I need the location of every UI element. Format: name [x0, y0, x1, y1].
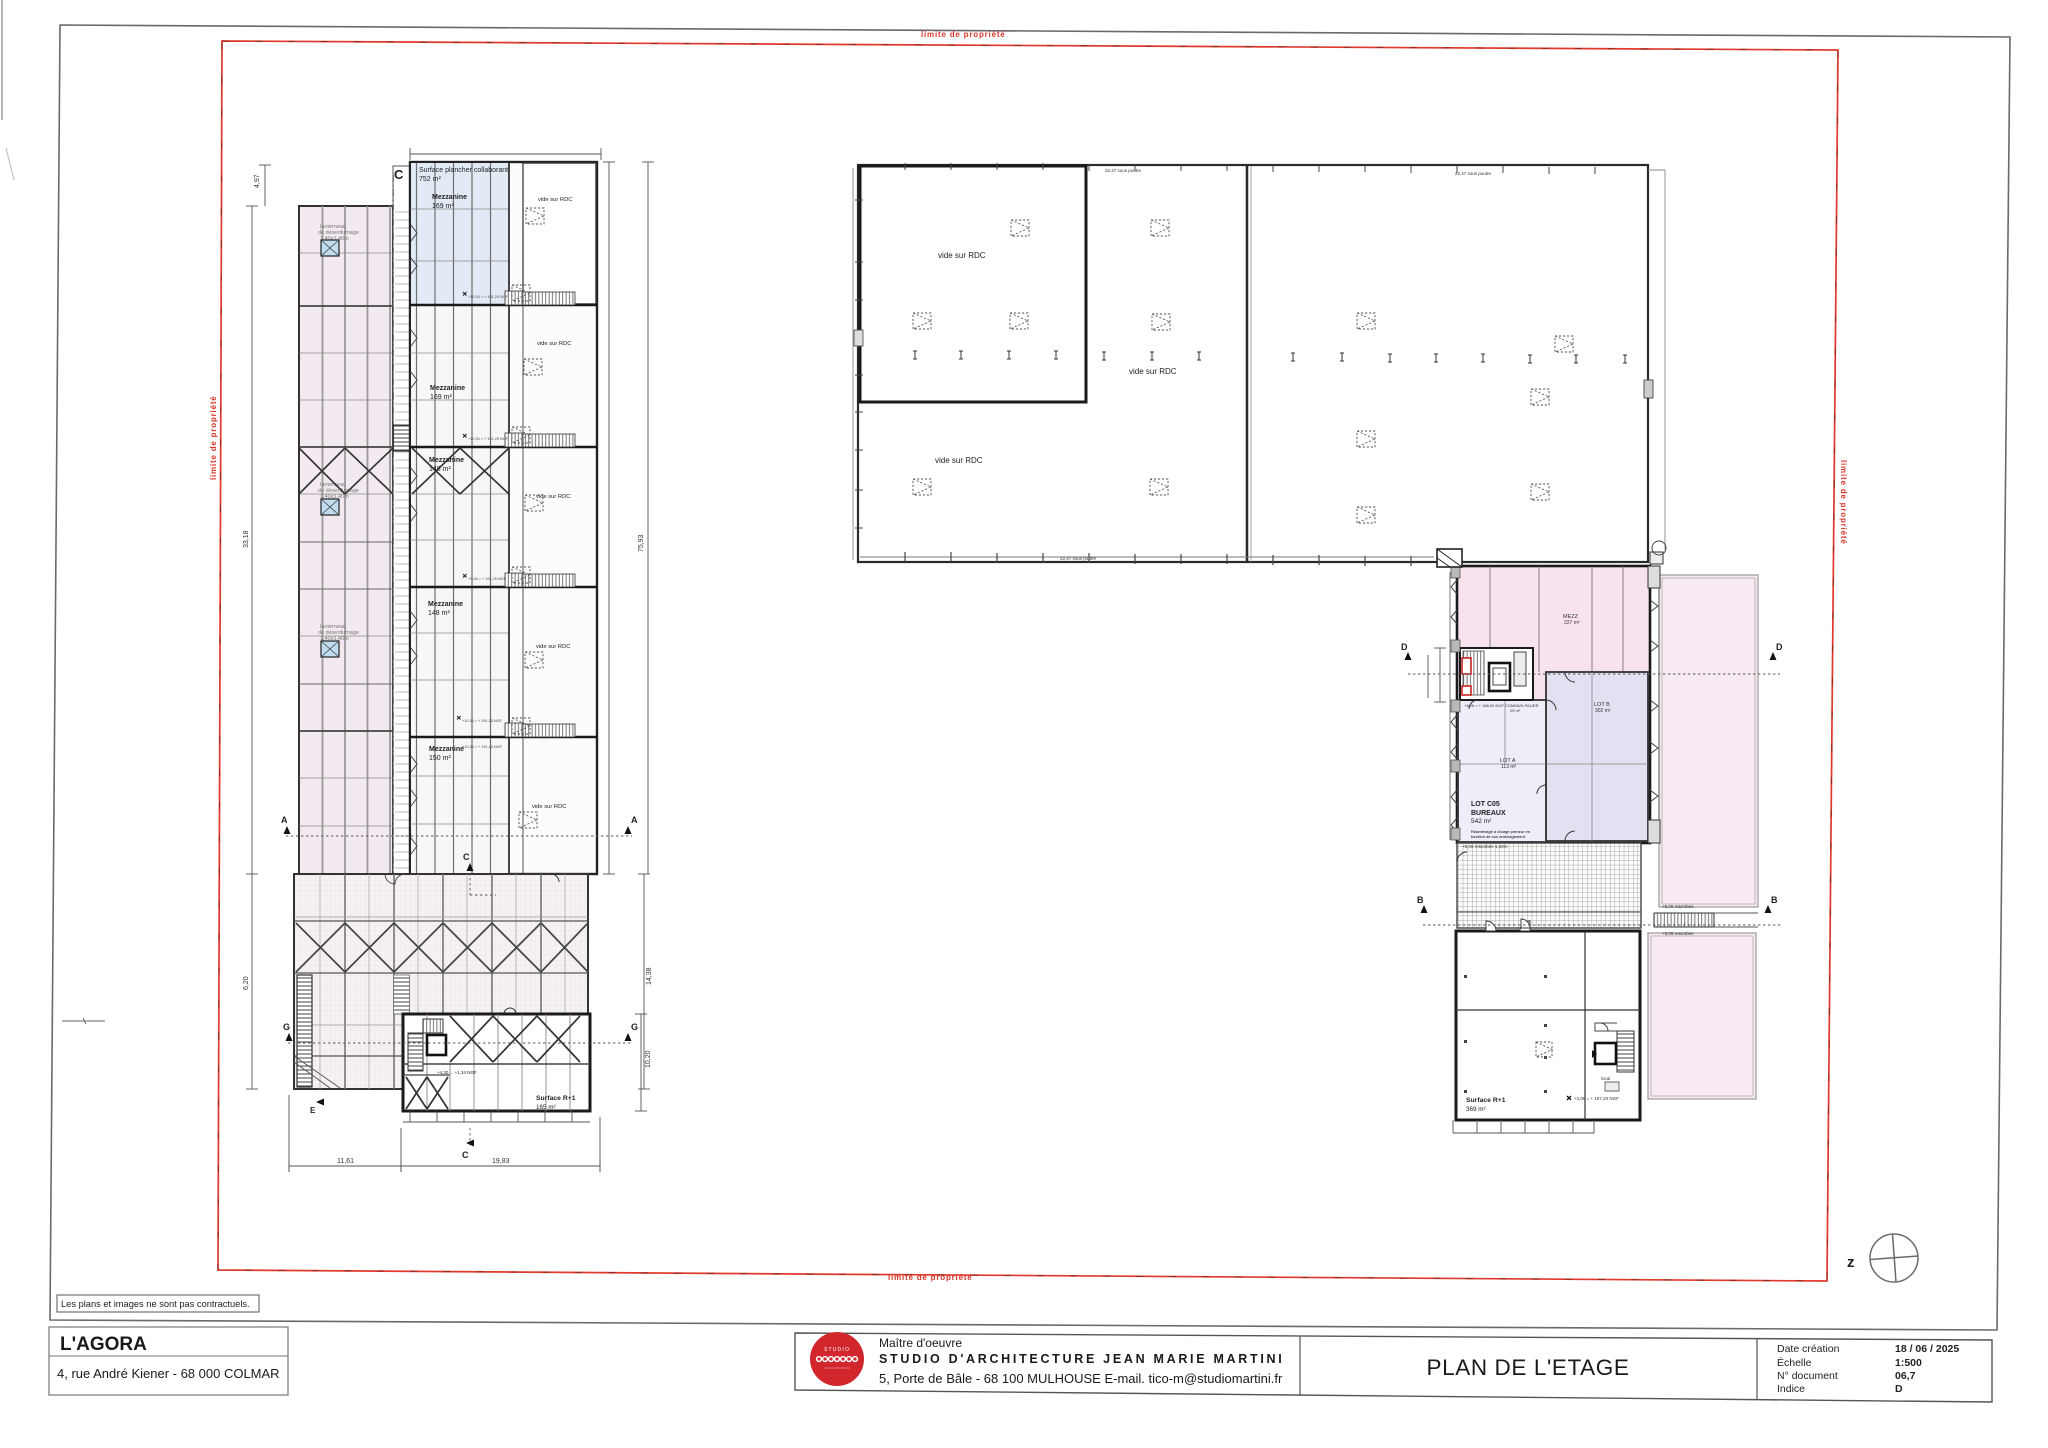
svg-text:+10,34 = + 191,25 NGF: +10,34 = + 191,25 NGF — [468, 437, 509, 441]
svg-text:4, rue André Kiener - 68 000 C: 4, rue André Kiener - 68 000 COLMAR — [57, 1366, 280, 1381]
svg-text:+5,06 retombée: +5,06 retombée — [1662, 904, 1694, 909]
svg-text:14,38: 14,38 — [646, 967, 653, 985]
svg-text:22,47 sous poutre: 22,47 sous poutre — [1060, 556, 1097, 561]
svg-text:10,20: 10,20 — [645, 1050, 652, 1068]
svg-text:+10,34 = + 191,25 NGF: +10,34 = + 191,25 NGF — [462, 745, 503, 749]
svg-text:Mezzanine: Mezzanine — [429, 746, 464, 753]
svg-text:LOT C05: LOT C05 — [1471, 801, 1500, 808]
svg-text:fonction de son aménagement: fonction de son aménagement — [1471, 834, 1526, 839]
svg-text:limite de propriété: limite de propriété — [921, 30, 1006, 39]
svg-text:vide sur RDC: vide sur RDC — [538, 197, 572, 203]
svg-text:+10,34 = + 191,25 NGF: +10,34 = + 191,25 NGF — [462, 719, 503, 723]
svg-text:752 m²: 752 m² — [419, 176, 441, 183]
svg-text:Mezzanine: Mezzanine — [429, 457, 464, 464]
svg-text:D: D — [1895, 1383, 1903, 1395]
svg-text:B: B — [1417, 895, 1424, 905]
svg-text:22,47 sous poutre: 22,47 sous poutre — [1455, 171, 1492, 176]
svg-text:169 m²: 169 m² — [432, 203, 454, 210]
svg-text:limite de propriété: limite de propriété — [209, 395, 218, 480]
svg-text:B: B — [1771, 895, 1778, 905]
svg-text:+5,06 retombée 1,20m: +5,06 retombée 1,20m — [1462, 844, 1508, 849]
svg-text:Maître d'oeuvre: Maître d'oeuvre — [879, 1336, 962, 1350]
svg-text:06,7: 06,7 — [1895, 1370, 1916, 1382]
svg-text:G: G — [283, 1022, 290, 1032]
svg-text:302 m²: 302 m² — [1595, 708, 1611, 714]
svg-text:vide sur RDC: vide sur RDC — [536, 644, 570, 650]
svg-text:25 m²: 25 m² — [1510, 708, 1521, 713]
svg-text:Surface plancher collaborant: Surface plancher collaborant — [419, 167, 508, 174]
svg-text:N° document: N° document — [1777, 1370, 1838, 1382]
svg-text:vide sur RDC: vide sur RDC — [938, 251, 986, 260]
svg-text:+5,06 retombée: +5,06 retombée — [1662, 931, 1694, 936]
svg-text:C: C — [462, 1150, 469, 1160]
svg-text:PLAN DE L'ETAGE: PLAN DE L'ETAGE — [1427, 1355, 1630, 1380]
svg-text:Mezzanine: Mezzanine — [428, 601, 463, 608]
svg-text:local: local — [1601, 1076, 1610, 1081]
svg-text:+4,06 = + 187,20 NGF: +4,06 = + 187,20 NGF — [1574, 1096, 1619, 1101]
svg-text:6,20: 6,20 — [243, 976, 250, 990]
svg-text:D: D — [1401, 642, 1408, 652]
svg-text:D: D — [1776, 642, 1783, 652]
svg-text:Mezzanine: Mezzanine — [430, 385, 465, 392]
svg-text:+4,30 ... +1,34 NGF: +4,30 ... +1,34 NGF — [437, 1070, 477, 1075]
svg-text:169 m²: 169 m² — [430, 394, 452, 401]
svg-text:113 m²: 113 m² — [1501, 764, 1517, 770]
svg-text:227 m²: 227 m² — [1564, 620, 1580, 626]
svg-text:A: A — [631, 815, 638, 825]
svg-text:148 m²: 148 m² — [429, 466, 451, 473]
svg-text:11,61: 11,61 — [337, 1158, 354, 1165]
svg-text:z: z — [1847, 1254, 1855, 1271]
svg-text:22,47 sous poutre: 22,47 sous poutre — [1105, 168, 1142, 173]
svg-text:Indice: Indice — [1777, 1383, 1805, 1395]
svg-text:165 m²: 165 m² — [536, 1104, 556, 1111]
svg-text:369 m²: 369 m² — [1466, 1106, 1486, 1113]
svg-text:18 / 06 / 2025: 18 / 06 / 2025 — [1895, 1343, 1959, 1355]
svg-text:limite de propriété: limite de propriété — [888, 1273, 973, 1282]
svg-text:33,18: 33,18 — [243, 530, 250, 548]
svg-text:A: A — [281, 815, 288, 825]
svg-text:148 m²: 148 m² — [428, 610, 450, 617]
svg-text:limite de propriété: limite de propriété — [1839, 460, 1848, 545]
svg-text:+10,34 = + 191,25 NGF: +10,34 = + 191,25 NGF — [468, 295, 509, 299]
svg-text:E: E — [310, 1106, 316, 1115]
svg-text:Surface R+1: Surface R+1 — [1466, 1097, 1506, 1104]
svg-text:L'AGORA: L'AGORA — [60, 1334, 147, 1355]
svg-text:STUDIO: STUDIO — [824, 1347, 850, 1353]
svg-text:STUDIO D'ARCHITECTURE JEAN MAR: STUDIO D'ARCHITECTURE JEAN MARIE MARTINI — [879, 1352, 1284, 1366]
svg-text:vide sur RDC: vide sur RDC — [935, 456, 983, 465]
svg-text:BUREAUX: BUREAUX — [1471, 810, 1506, 817]
svg-text:Mezzanine: Mezzanine — [432, 194, 467, 201]
svg-text:C: C — [463, 852, 470, 862]
svg-text:5, Porte de Bâle - 68 100 MULH: 5, Porte de Bâle - 68 100 MULHOUSE E-mai… — [879, 1371, 1283, 1386]
svg-text:G: G — [631, 1022, 638, 1032]
svg-text:75,93: 75,93 — [638, 534, 645, 552]
svg-text:+9,06 = + 191,25 NGF: +9,06 = + 191,25 NGF — [468, 577, 507, 581]
svg-text:vide sur RDC: vide sur RDC — [1129, 367, 1177, 376]
svg-text:Échelle: Échelle — [1777, 1356, 1812, 1369]
svg-text:vide sur RDC: vide sur RDC — [537, 341, 571, 347]
svg-text:150 m²: 150 m² — [429, 755, 451, 762]
svg-text:1:500: 1:500 — [1895, 1357, 1922, 1369]
svg-text:vide sur RDC: vide sur RDC — [532, 804, 566, 810]
svg-text:Date création: Date création — [1777, 1343, 1840, 1355]
svg-text:542 m²: 542 m² — [1471, 818, 1492, 825]
svg-text:4,97: 4,97 — [254, 174, 261, 188]
svg-text:Surface R+1: Surface R+1 — [536, 1095, 576, 1102]
svg-text:C: C — [394, 167, 404, 182]
svg-text:Les plans et images ne sont pa: Les plans et images ne sont pas contract… — [61, 1299, 250, 1309]
svg-text:19,83: 19,83 — [492, 1158, 510, 1165]
